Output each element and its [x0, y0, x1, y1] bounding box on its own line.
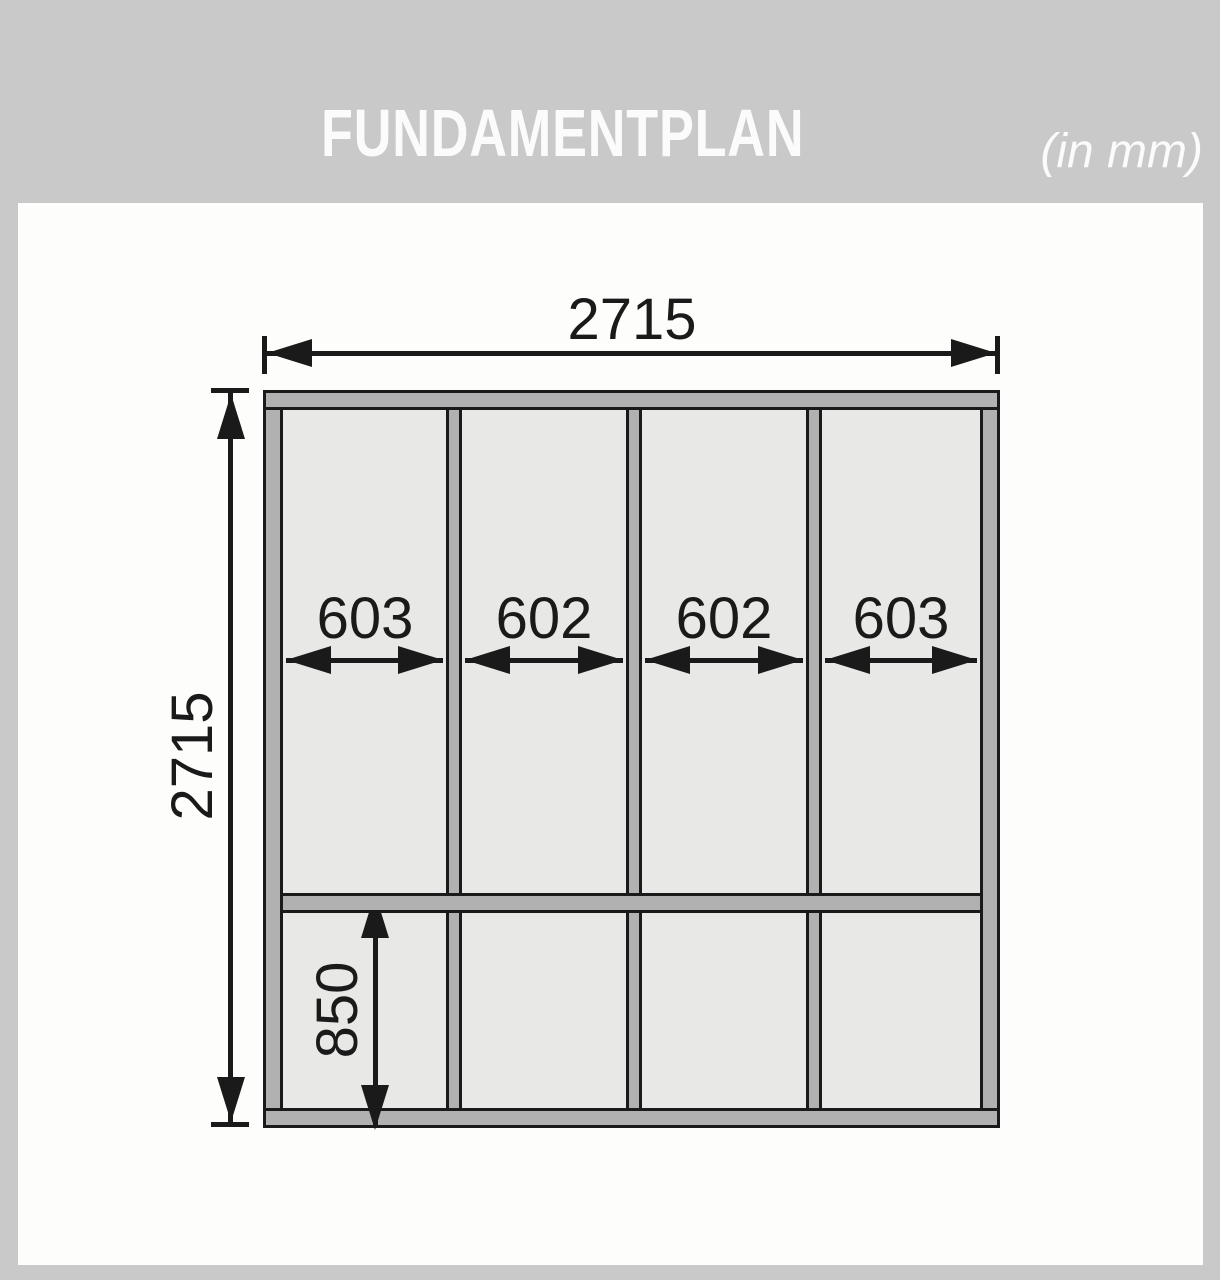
beam-divider-1 — [446, 410, 462, 1108]
arrowhead-left-icon — [267, 339, 312, 367]
unit-note: (in mm) — [1040, 128, 1203, 176]
dim-overall-height-line — [228, 393, 233, 1124]
dim-bay1-label: 603 — [275, 590, 455, 648]
beam-middle — [283, 893, 980, 913]
dim-overall-height-label: 2715 — [163, 606, 223, 906]
dim-bay4-label: 603 — [811, 590, 991, 648]
arrowhead-right-icon — [398, 646, 443, 674]
beam-right — [980, 410, 997, 1108]
page: FUNDAMENTPLAN (in mm) 2715 2715 603 602 … — [0, 0, 1220, 1280]
arrowhead-left-icon — [465, 646, 510, 674]
beam-top — [266, 393, 997, 410]
beam-left — [266, 410, 283, 1108]
beam-divider-3 — [806, 410, 822, 1108]
arrowhead-right-icon — [932, 646, 977, 674]
dim-overall-width-line — [266, 351, 997, 356]
arrowhead-right-icon — [758, 646, 803, 674]
arrowhead-down-icon — [361, 1085, 389, 1130]
page-title: FUNDAMENTPLAN — [321, 100, 789, 167]
arrowhead-down-icon — [217, 1077, 245, 1122]
beam-divider-2 — [626, 410, 642, 1108]
arrowhead-right-icon — [578, 646, 623, 674]
arrowhead-left-icon — [645, 646, 690, 674]
arrowhead-left-icon — [286, 646, 331, 674]
arrowhead-left-icon — [825, 646, 870, 674]
dim-overall-width-label: 2715 — [482, 291, 782, 349]
arrowhead-right-icon — [951, 339, 996, 367]
dim-bay3-label: 602 — [634, 590, 814, 648]
arrowhead-up-icon — [217, 394, 245, 439]
dim-bay2-label: 602 — [454, 590, 634, 648]
